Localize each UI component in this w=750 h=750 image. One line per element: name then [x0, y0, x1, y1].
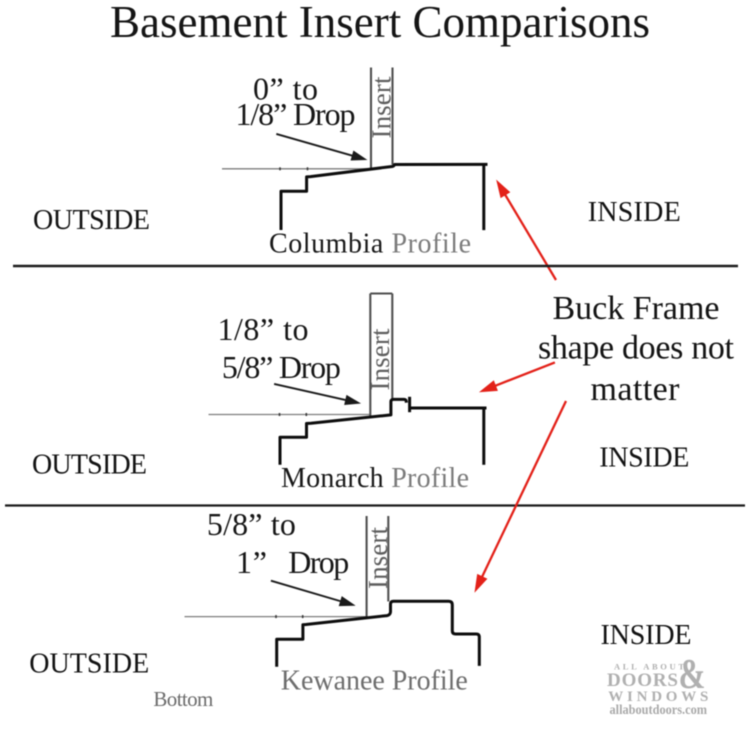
svg-text:DOORS: DOORS [607, 670, 678, 691]
svg-text:5/8” to: 5/8” to [207, 506, 296, 542]
svg-text:Bottom: Bottom [153, 687, 213, 711]
svg-text:1/8” Drop: 1/8” Drop [236, 96, 356, 132]
svg-text:Insert: Insert [367, 76, 397, 138]
svg-text:Buck Frame: Buck Frame [553, 290, 720, 327]
svg-text:Kewanee Profile: Kewanee Profile [281, 666, 468, 697]
svg-text:OUTSIDE: OUTSIDE [29, 648, 149, 679]
svg-text:matter: matter [591, 371, 681, 408]
svg-text:Drop: Drop [288, 544, 349, 580]
svg-text:1/8” to: 1/8” to [218, 311, 309, 347]
svg-text:Insert: Insert [363, 527, 393, 589]
svg-text:OUTSIDE: OUTSIDE [32, 450, 147, 481]
svg-text:5/8” Drop: 5/8” Drop [222, 349, 341, 385]
svg-text:shape does not: shape does not [538, 330, 735, 367]
svg-text:Basement Insert Comparisons: Basement Insert Comparisons [110, 0, 650, 47]
svg-text:INSIDE: INSIDE [601, 620, 692, 651]
svg-text:1”: 1” [236, 544, 267, 580]
svg-text:INSIDE: INSIDE [599, 443, 689, 474]
svg-text:allaboutdoors.com: allaboutdoors.com [610, 703, 708, 718]
svg-text:Insert: Insert [365, 328, 395, 390]
svg-text:INSIDE: INSIDE [588, 197, 681, 228]
svg-text:OUTSIDE: OUTSIDE [33, 205, 150, 236]
svg-text:Monarch Profile: Monarch Profile [281, 463, 469, 494]
svg-text:Columbia Profile: Columbia Profile [269, 229, 471, 260]
